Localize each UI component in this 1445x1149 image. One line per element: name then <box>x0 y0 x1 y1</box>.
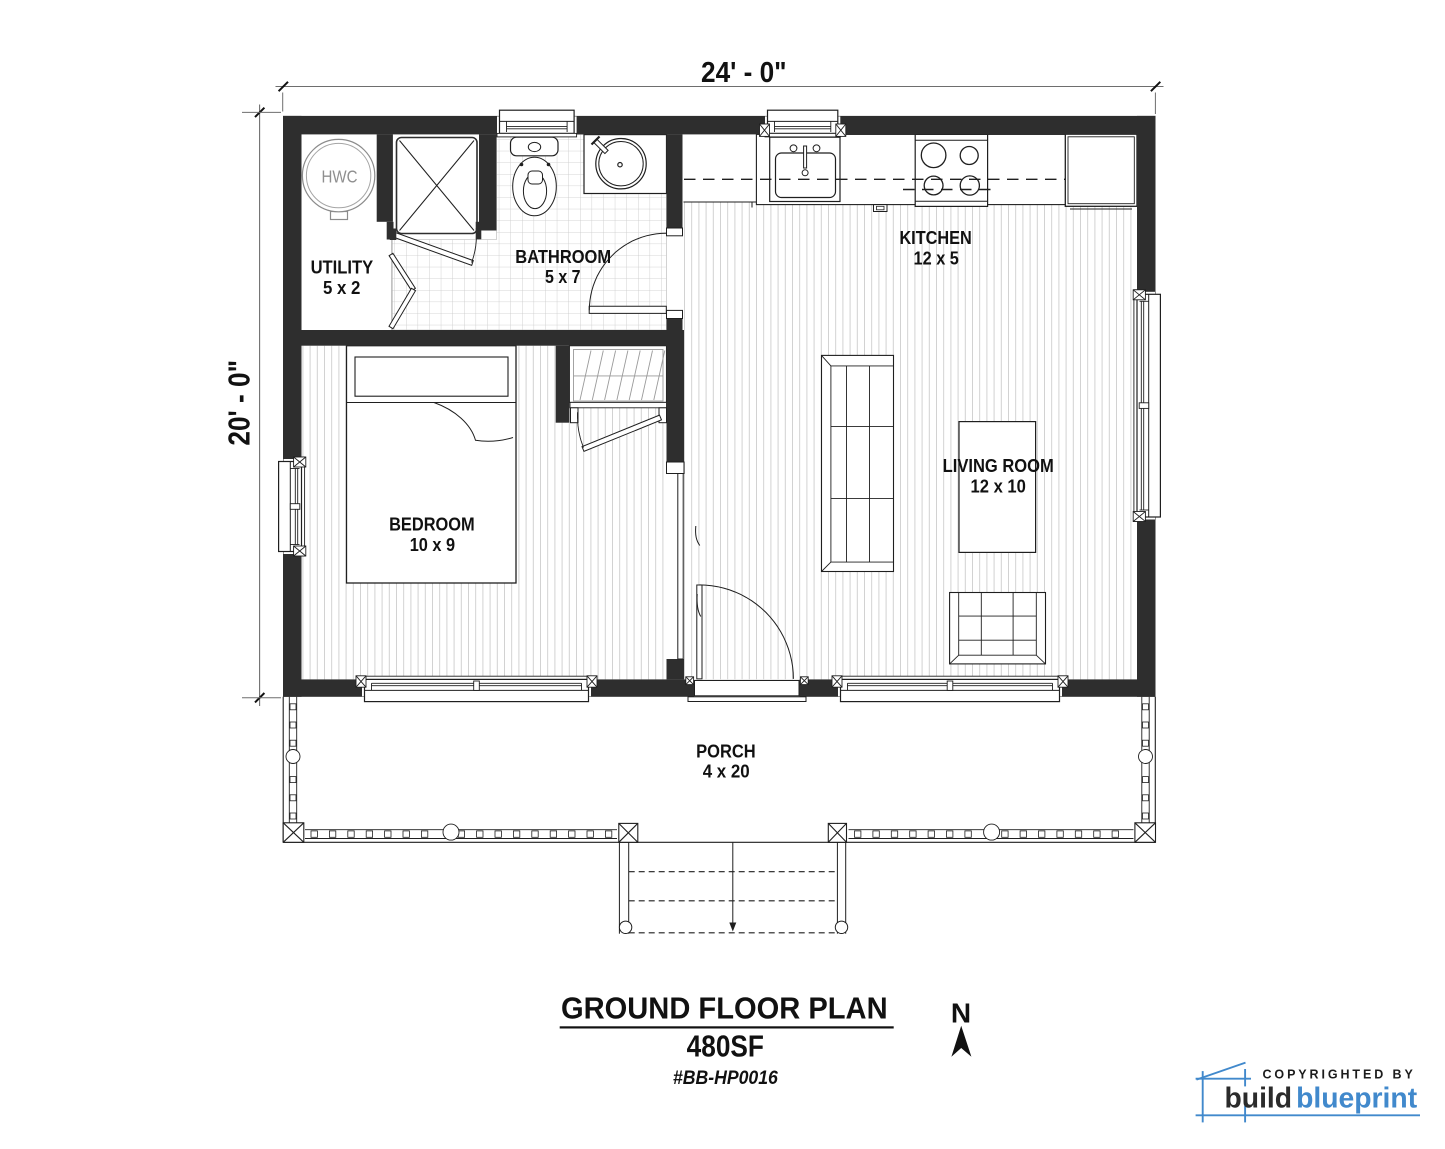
svg-text:N: N <box>951 997 971 1028</box>
svg-text:10 x 9: 10 x 9 <box>410 534 455 555</box>
svg-text:LIVING ROOM: LIVING ROOM <box>943 455 1054 476</box>
svg-text:12 x 5: 12 x 5 <box>914 248 959 269</box>
svg-text:KITCHEN: KITCHEN <box>899 227 971 248</box>
svg-text:#BB-HP0016: #BB-HP0016 <box>673 1067 778 1089</box>
svg-text:24' - 0": 24' - 0" <box>701 57 787 89</box>
svg-text:5 x 2: 5 x 2 <box>323 277 360 298</box>
svg-text:BEDROOM: BEDROOM <box>389 514 475 535</box>
svg-text:PORCH: PORCH <box>696 741 756 762</box>
svg-text:UTILITY: UTILITY <box>311 256 374 277</box>
svg-text:buildblueprint: buildblueprint <box>1225 1082 1418 1114</box>
svg-text:12 x 10: 12 x 10 <box>971 475 1026 496</box>
svg-text:4 x 20: 4 x 20 <box>703 761 750 782</box>
svg-text:480SF: 480SF <box>687 1030 764 1064</box>
svg-text:BATHROOM: BATHROOM <box>515 246 611 267</box>
svg-text:HWC: HWC <box>322 166 358 186</box>
svg-text:5 x 7: 5 x 7 <box>545 266 581 287</box>
svg-text:20' - 0": 20' - 0" <box>223 360 256 446</box>
svg-text:GROUND FLOOR PLAN: GROUND FLOOR PLAN <box>561 990 888 1025</box>
